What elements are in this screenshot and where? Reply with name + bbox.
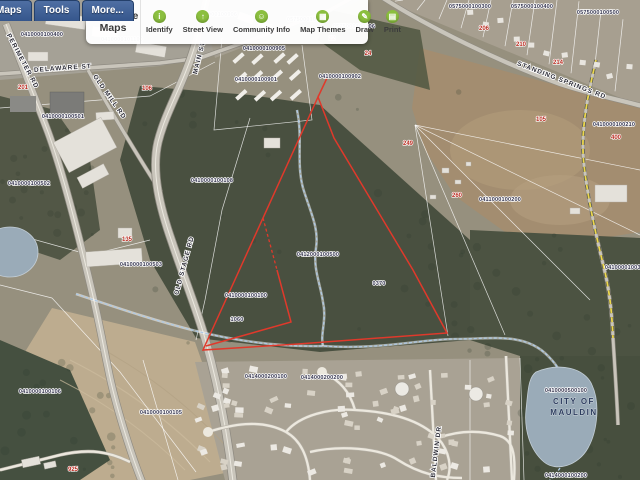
parcel-label: 0575000100300 <box>449 4 491 10</box>
address-label: 206 <box>479 26 490 32</box>
toolbar-button-community-info[interactable]: ☺Community Info <box>228 7 295 37</box>
toolbar-button-label: Map Themes <box>300 25 345 34</box>
address-label: 106 <box>142 86 153 92</box>
address-label: 210 <box>516 42 527 48</box>
parcel-label: 0412000100500 <box>297 252 339 258</box>
tab-more[interactable]: More... <box>82 0 134 21</box>
parcel-label: 0410000100210 <box>593 122 635 128</box>
parcel-label: 0410000100106 <box>19 389 61 395</box>
main-tab-bar: MapsToolsMore... <box>0 0 134 21</box>
toolbar-button-label: Draw <box>356 25 374 34</box>
parcel-label: 0410000100901 <box>235 77 277 83</box>
parcel-label: 0575000100500 <box>577 10 619 16</box>
toolbar-buttons: iIdentify↑Street View☺Community Info▦Map… <box>141 0 406 44</box>
parcel-label: 0410000100905 <box>243 46 285 52</box>
parcel-label: 0410000100902 <box>319 74 361 80</box>
parcel-label: 0410000100105 <box>140 410 182 416</box>
parcel-label: 0410000100100 <box>225 293 267 299</box>
parcel-label: 0410000500100 <box>545 388 587 394</box>
toolbar-button-street-view[interactable]: ↑Street View <box>178 7 228 37</box>
address-label: 105 <box>536 117 547 123</box>
draw-icon: ✎ <box>358 10 371 23</box>
address-label: 214 <box>553 60 564 66</box>
map-viewport[interactable]: PERIMETER RDDELAWARE STMAIN STOLD MILL R… <box>0 0 640 480</box>
map-themes-icon: ▦ <box>316 10 329 23</box>
parcel-label: 0410000100305 <box>605 265 640 271</box>
toolbar-button-label: Community Info <box>233 25 290 34</box>
parcel-label: 0411000100200 <box>479 197 521 203</box>
toolbar-button-label: Print <box>384 25 401 34</box>
parcel-label: 0414000200200 <box>301 375 343 381</box>
tab-tools[interactable]: Tools <box>34 0 80 21</box>
identify-icon: i <box>153 10 166 23</box>
toolbar-button-label: Street View <box>183 25 223 34</box>
parcel-label: 0370 <box>372 281 385 287</box>
address-label: 249 <box>403 141 414 147</box>
city-label: MAULDIN <box>550 408 597 417</box>
parcel-label: 1060 <box>230 317 243 323</box>
parcel-label: 0414000200100 <box>245 374 287 380</box>
city-label: CITY OF <box>553 397 595 406</box>
parcel-label: 0575000100400 <box>511 4 553 10</box>
address-label: 135 <box>122 237 133 243</box>
app-window: PERIMETER RDDELAWARE STMAIN STOLD MILL R… <box>0 0 640 480</box>
parcel-label: 0410000100108 <box>191 178 233 184</box>
toolbar-button-identify[interactable]: iIdentify <box>141 7 178 37</box>
address-label: 24 <box>365 51 372 57</box>
address-label: 260 <box>452 193 463 199</box>
community-info-icon: ☺ <box>255 10 268 23</box>
parcel-label: 0410000100503 <box>120 262 162 268</box>
address-label: 201 <box>18 85 29 91</box>
parcel-label: 0410000100501 <box>42 114 84 120</box>
address-label: 400 <box>611 135 622 141</box>
parcel-label: 0414000100200 <box>545 473 587 479</box>
toolbar-button-map-themes[interactable]: ▦Map Themes <box>295 7 350 37</box>
toolbar-button-label: Identify <box>146 25 173 34</box>
parcel-label: 0410000100502 <box>8 181 50 187</box>
street-view-icon: ↑ <box>196 10 209 23</box>
print-icon: ▤ <box>386 10 399 23</box>
tab-maps[interactable]: Maps <box>0 0 32 21</box>
toolbar-button-print[interactable]: ▤Print <box>379 7 406 37</box>
address-label: 925 <box>68 467 79 473</box>
toolbar-button-draw[interactable]: ✎Draw <box>351 7 379 37</box>
parcel-label: 0410000100400 <box>21 32 63 38</box>
